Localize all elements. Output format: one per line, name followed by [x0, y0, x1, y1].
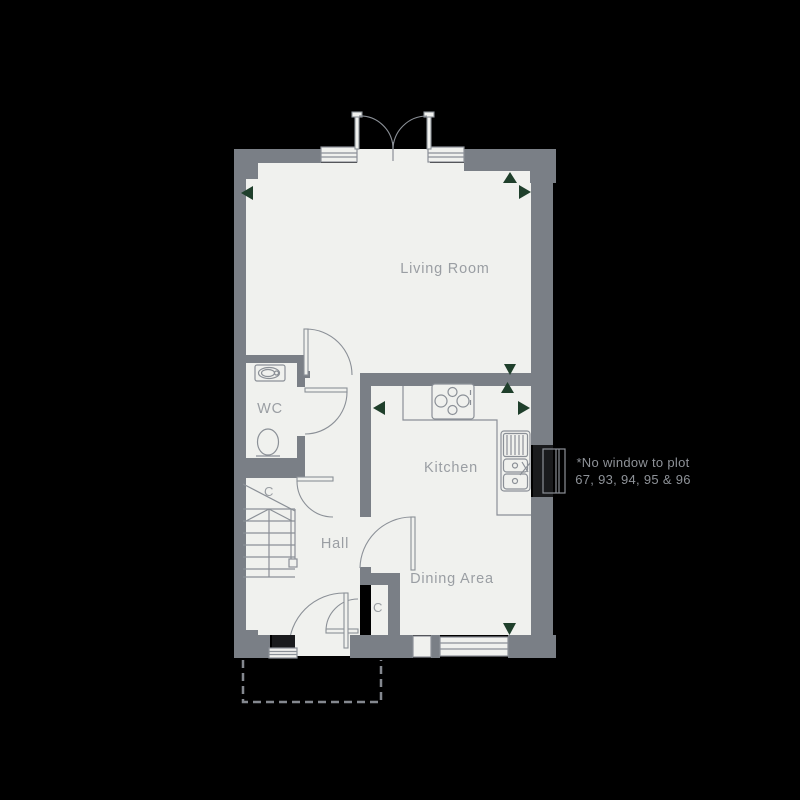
wall-bottom-left	[234, 635, 270, 658]
floorplan-page: Living Room WC Hall Kitchen Dining Area …	[0, 0, 800, 800]
window-dining-bottom	[413, 636, 508, 657]
bottom-cupboard-label: C	[373, 600, 383, 615]
no-window-note: *No window to plot 67, 93, 94, 95 & 96	[575, 455, 691, 487]
wall-wc-bottom	[246, 458, 305, 478]
window-top-right	[428, 147, 464, 162]
wall-hall-kitchen-divider	[360, 386, 371, 517]
french-door-right-leaf	[427, 116, 431, 149]
wc-basin	[255, 365, 285, 381]
wall-right-upper	[531, 171, 553, 445]
kitchen-hob	[432, 384, 474, 419]
french-door-left-swing	[359, 116, 393, 149]
wall-dining-door-stub	[360, 567, 371, 585]
understairs-cupboard-label: C	[264, 484, 274, 499]
porch-outline	[243, 660, 381, 702]
wall-wc-top	[246, 355, 305, 363]
front-door-step	[269, 648, 297, 658]
dining-window-side-panel	[413, 636, 431, 657]
kitchen-label: Kitchen	[424, 460, 478, 476]
floorplan-svg: Living Room WC Hall Kitchen Dining Area …	[0, 0, 800, 800]
french-door-right-swing	[393, 116, 427, 149]
wall-bottom-window-jamb	[431, 635, 440, 658]
front-door-panel	[272, 635, 295, 648]
wall-top-left	[234, 149, 321, 163]
wall-top-right	[464, 149, 530, 171]
hall-dining-doorway-floor	[360, 517, 371, 567]
wall-bottom-center	[350, 635, 413, 658]
wall-bottom-right-corner	[508, 635, 556, 658]
stairs-newel-post	[289, 559, 297, 567]
french-door-left-leaf	[355, 116, 359, 149]
wc-label: WC	[257, 401, 283, 417]
note-line-1: *No window to plot	[576, 455, 689, 470]
window-top-left	[321, 147, 357, 162]
hall-label: Hall	[321, 536, 349, 552]
wall-cupboard-right	[388, 585, 400, 635]
blocked-kitchen-window	[533, 445, 565, 497]
living-room-label: Living Room	[400, 261, 489, 277]
wall-cupboard-top	[371, 573, 400, 585]
wall-right-lower	[531, 497, 553, 637]
front-doorway-floor	[295, 635, 350, 656]
kitchen-sink	[501, 431, 530, 491]
wall-left	[234, 163, 246, 649]
dining-area-label: Dining Area	[410, 571, 494, 587]
note-line-2: 67, 93, 94, 95 & 96	[575, 472, 691, 487]
hall-doorway-floor	[297, 363, 360, 635]
